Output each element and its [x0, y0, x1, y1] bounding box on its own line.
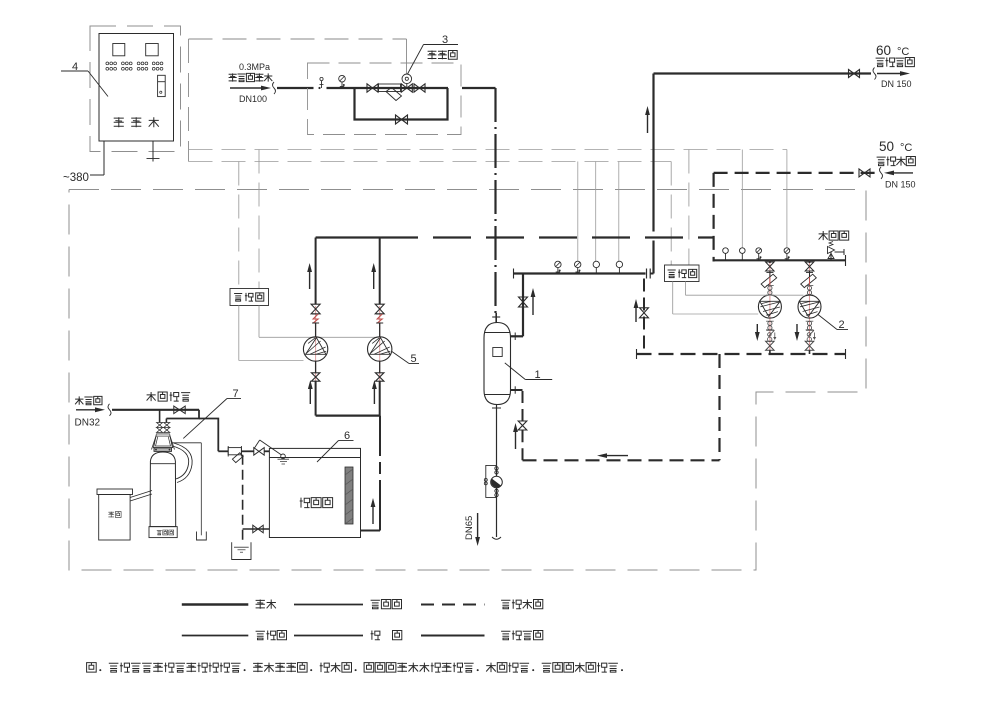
svg-text:DN65: DN65	[464, 516, 475, 540]
svg-text:DN100: DN100	[239, 94, 267, 104]
svg-text:50: 50	[879, 139, 894, 154]
svg-text:1: 1	[535, 369, 541, 381]
svg-text:~380: ~380	[63, 172, 89, 184]
svg-text:2: 2	[839, 319, 845, 331]
svg-text:5: 5	[411, 353, 417, 365]
svg-text:60: 60	[876, 43, 891, 58]
svg-text:°C: °C	[900, 142, 912, 154]
svg-text:0.3MPa: 0.3MPa	[239, 62, 270, 72]
svg-text:DN 150: DN 150	[885, 180, 916, 190]
svg-text:DN 150: DN 150	[881, 79, 912, 89]
svg-text:DN32: DN32	[75, 418, 101, 429]
svg-text:°C: °C	[897, 46, 909, 58]
